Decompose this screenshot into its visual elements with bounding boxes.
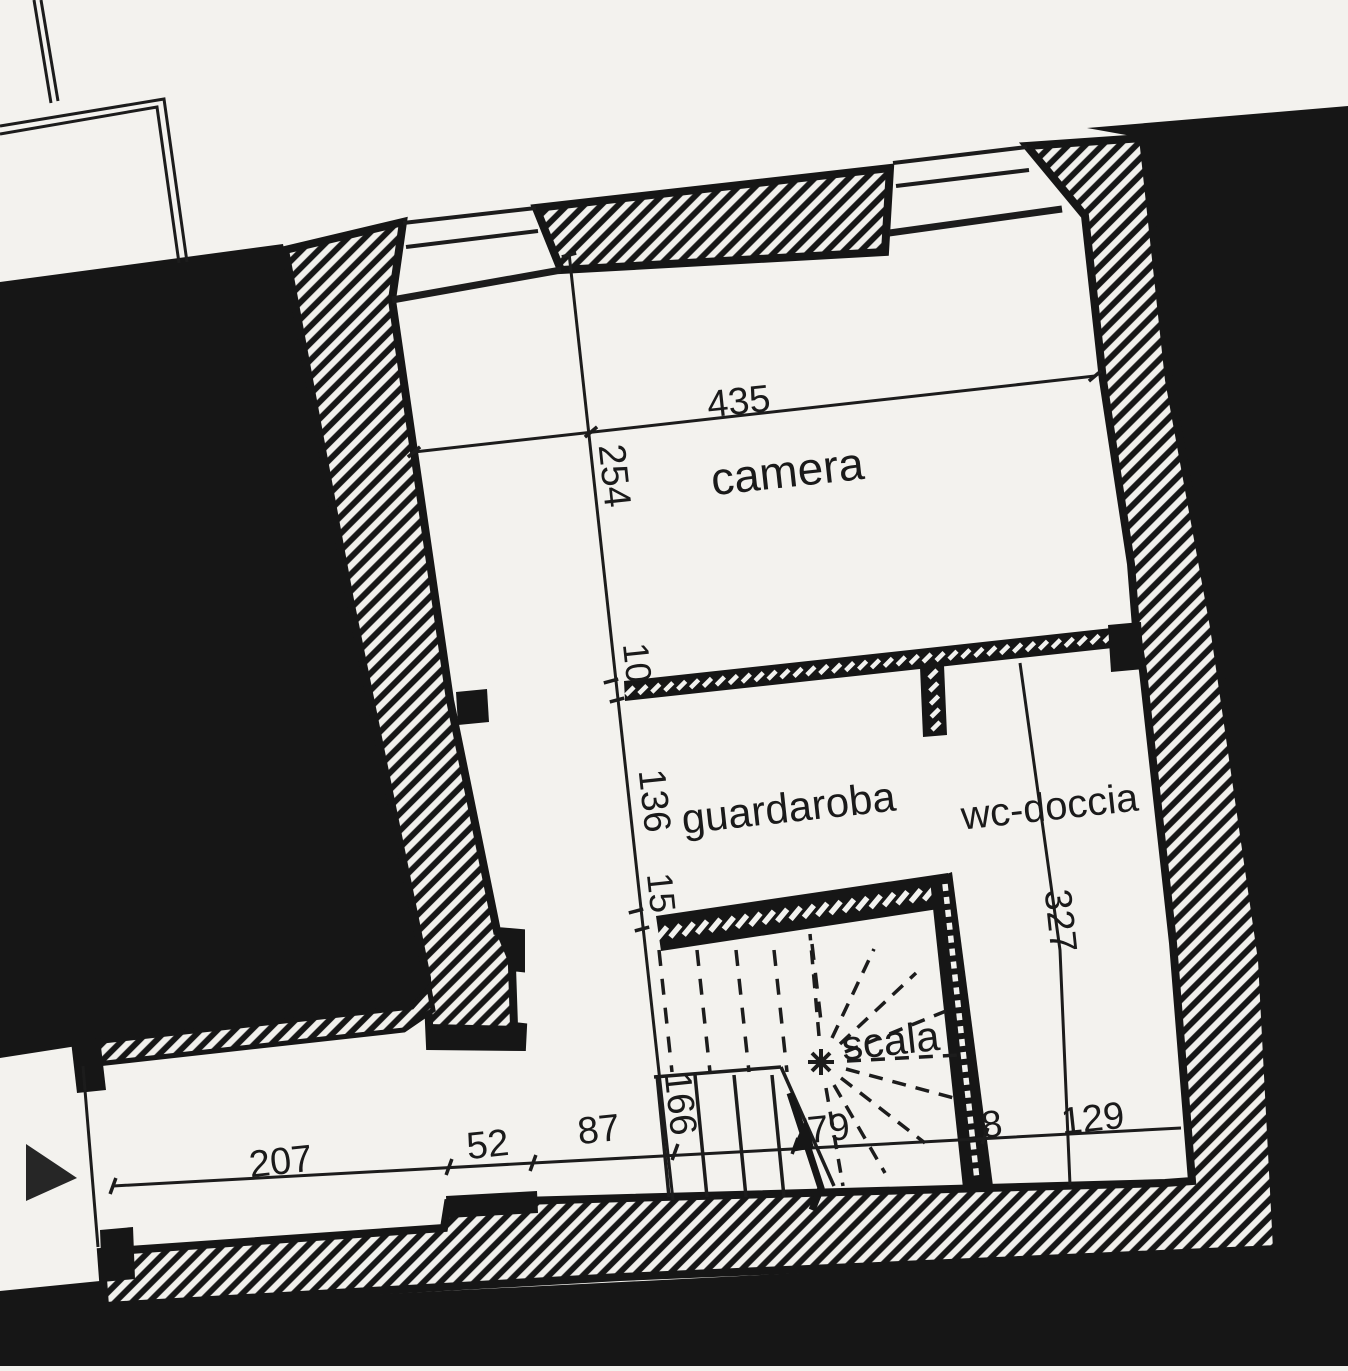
svg-text:435: 435: [705, 378, 773, 427]
svg-text:15: 15: [639, 871, 684, 915]
svg-text:79: 79: [805, 1106, 852, 1152]
svg-text:254: 254: [590, 442, 638, 509]
svg-text:10: 10: [615, 641, 660, 685]
svg-text:52: 52: [464, 1122, 511, 1168]
svg-text:327: 327: [1036, 887, 1084, 954]
svg-text:129: 129: [1059, 1095, 1127, 1144]
svg-text:136: 136: [630, 767, 678, 834]
svg-text:87: 87: [575, 1107, 622, 1153]
svg-text:166: 166: [656, 1070, 704, 1137]
svg-text:207: 207: [247, 1138, 315, 1187]
svg-text:8: 8: [979, 1103, 1005, 1147]
